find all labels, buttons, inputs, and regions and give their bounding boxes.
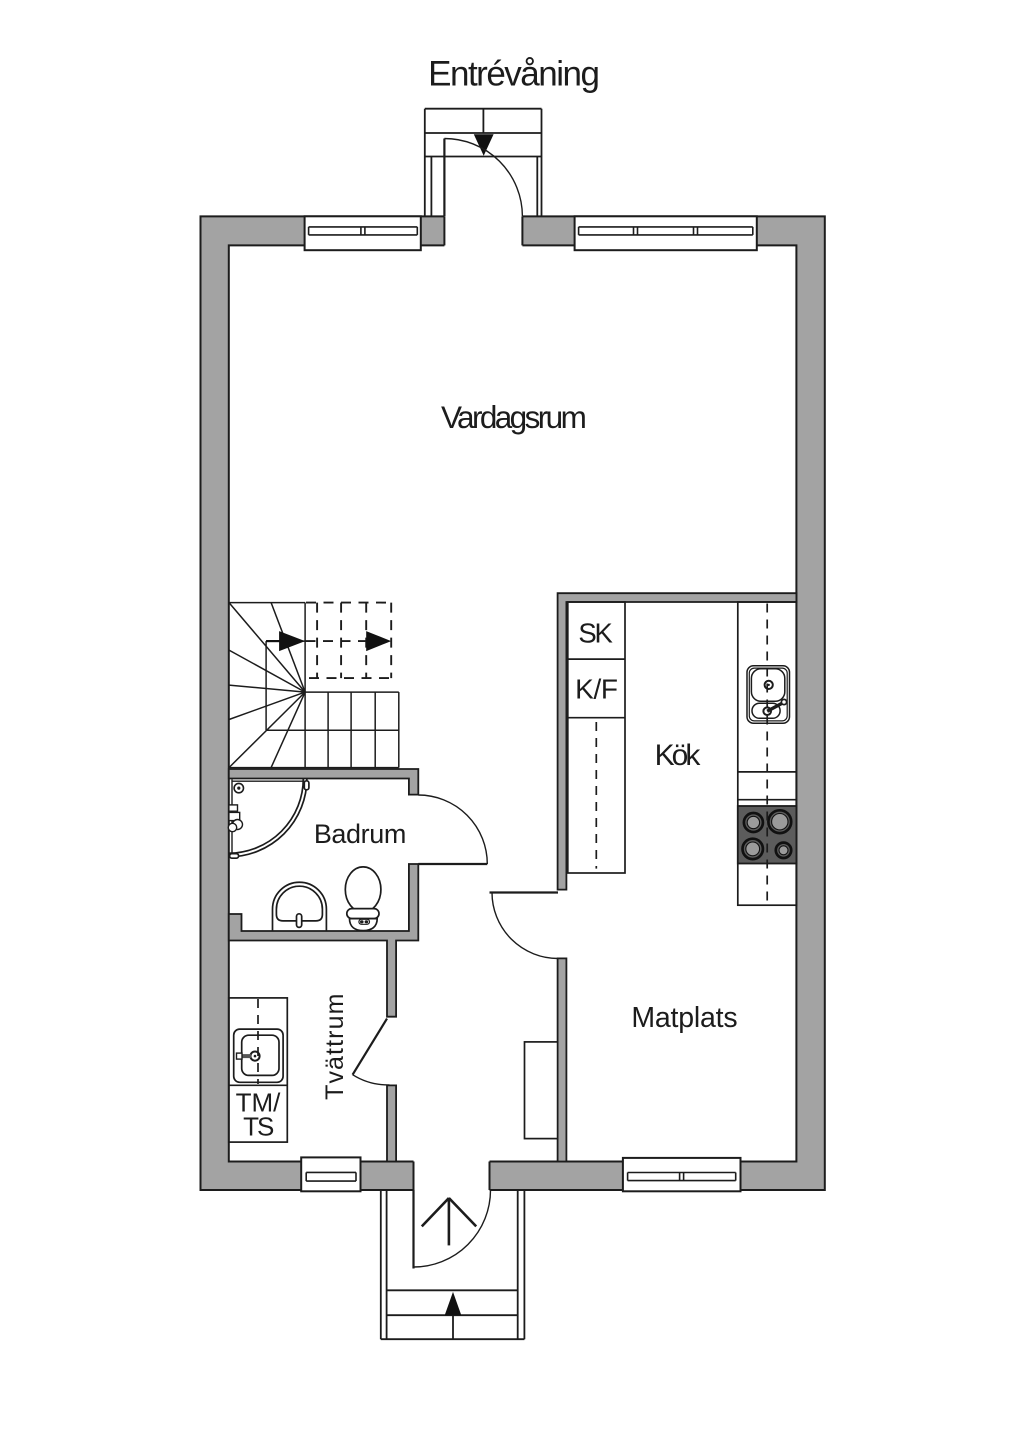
svg-text:TS: TS: [243, 1111, 274, 1141]
svg-text:Entrévåning: Entrévåning: [428, 55, 598, 94]
svg-text:K/F: K/F: [575, 674, 618, 705]
svg-text:Vardagsrum: Vardagsrum: [441, 399, 586, 435]
svg-text:SK: SK: [578, 617, 613, 648]
svg-text:Badrum: Badrum: [314, 819, 406, 849]
svg-text:Matplats: Matplats: [631, 1002, 737, 1034]
svg-text:Tvättrum: Tvättrum: [321, 992, 349, 1099]
svg-text:Kök: Kök: [655, 739, 702, 772]
